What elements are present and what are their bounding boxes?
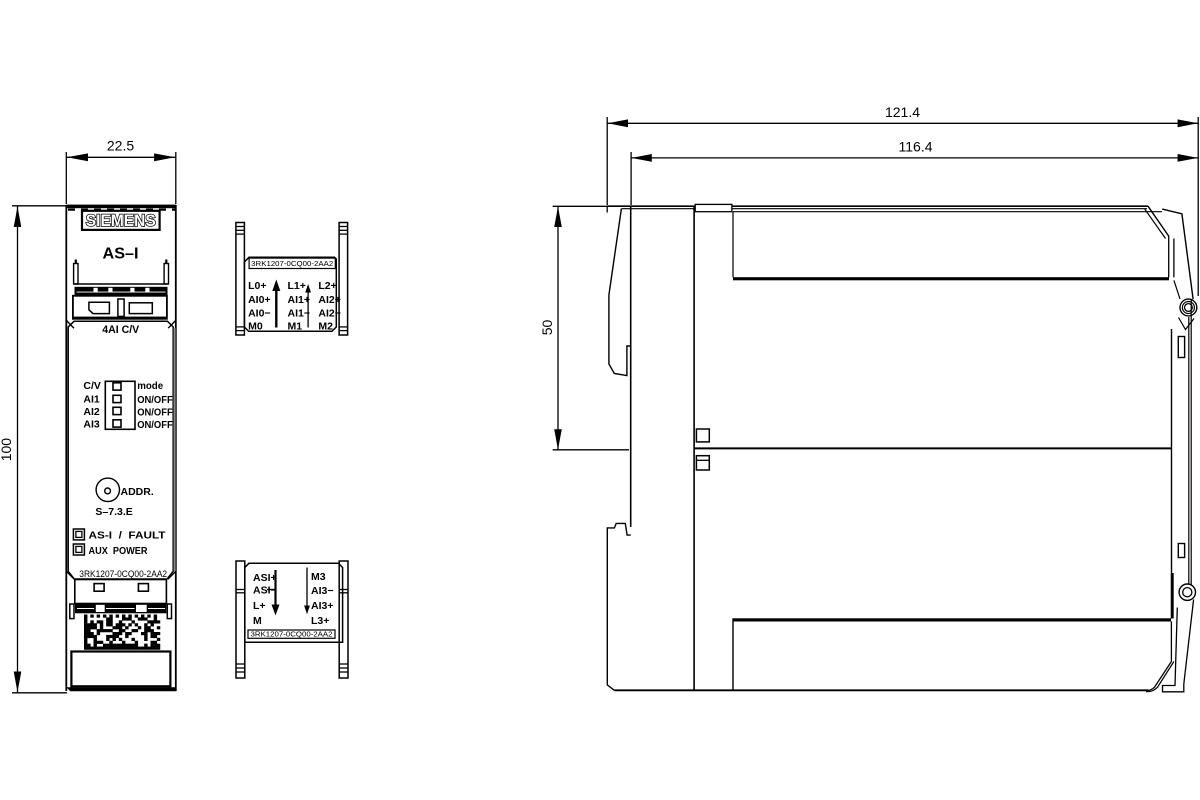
svg-text:ADDR.: ADDR. [121,486,154,498]
svg-text:ON/OFF: ON/OFF [137,406,173,418]
svg-text:M: M [253,615,262,627]
svg-text:3RK1207-0CQ00-2AA2: 3RK1207-0CQ00-2AA2 [251,261,333,268]
svg-text:S–7.3.E: S–7.3.E [95,506,132,518]
svg-text:AI2−: AI2− [318,307,340,319]
svg-text:AI1+: AI1+ [288,294,310,306]
svg-text:AI1: AI1 [83,393,100,405]
svg-text:M3: M3 [311,571,326,583]
svg-text:L0+: L0+ [248,280,266,292]
svg-text:L2+: L2+ [318,280,336,292]
svg-text:ON/OFF: ON/OFF [137,419,173,431]
svg-text:AI0−: AI0− [248,307,270,319]
svg-text:AI2: AI2 [83,406,100,418]
svg-text:L+: L+ [253,600,266,612]
svg-text:22.5: 22.5 [107,138,134,154]
svg-text:C/V: C/V [83,380,101,392]
svg-text:AUX POWER: AUX POWER [89,545,148,557]
svg-text:M2: M2 [318,320,333,332]
svg-text:AI3: AI3 [83,418,100,430]
svg-text:3RK1207-0CQ00-2AA2: 3RK1207-0CQ00-2AA2 [251,632,333,639]
svg-text:116.4: 116.4 [899,139,933,155]
svg-text:SIEMENS: SIEMENS [86,211,156,230]
svg-text:L1+: L1+ [288,280,306,292]
svg-text:L3+: L3+ [311,615,329,627]
svg-text:AI0+: AI0+ [248,294,270,306]
svg-text:121.4: 121.4 [885,104,920,120]
svg-text:ASI−: ASI− [253,585,277,597]
svg-text:AI2+: AI2+ [318,294,340,306]
svg-text:AI3−: AI3− [311,585,333,597]
svg-text:M1: M1 [288,320,303,332]
svg-text:4AI C/V: 4AI C/V [102,324,140,336]
svg-text:mode: mode [137,380,163,392]
svg-text:AI1−: AI1− [288,307,310,319]
svg-text:ASI+: ASI+ [253,572,277,584]
svg-text:3RK1207-0CQ00-2AA2: 3RK1207-0CQ00-2AA2 [79,569,167,579]
svg-text:AI3+: AI3+ [311,600,333,612]
svg-text:50: 50 [539,320,555,336]
svg-text:100: 100 [0,438,14,462]
svg-text:AS-I / FAULT: AS-I / FAULT [89,530,167,542]
svg-text:M0: M0 [248,320,263,332]
svg-text:AS–I: AS–I [103,246,139,263]
svg-text:ON/OFF: ON/OFF [137,394,173,406]
